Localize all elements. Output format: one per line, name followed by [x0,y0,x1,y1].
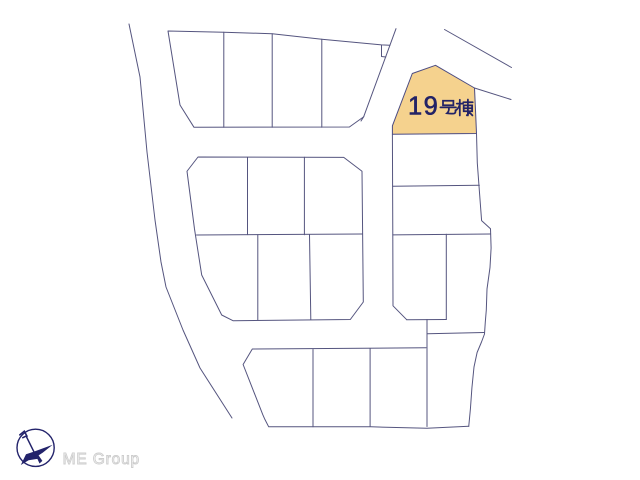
svg-text:ME Group: ME Group [63,451,140,468]
svg-text:19: 19 [408,93,439,121]
